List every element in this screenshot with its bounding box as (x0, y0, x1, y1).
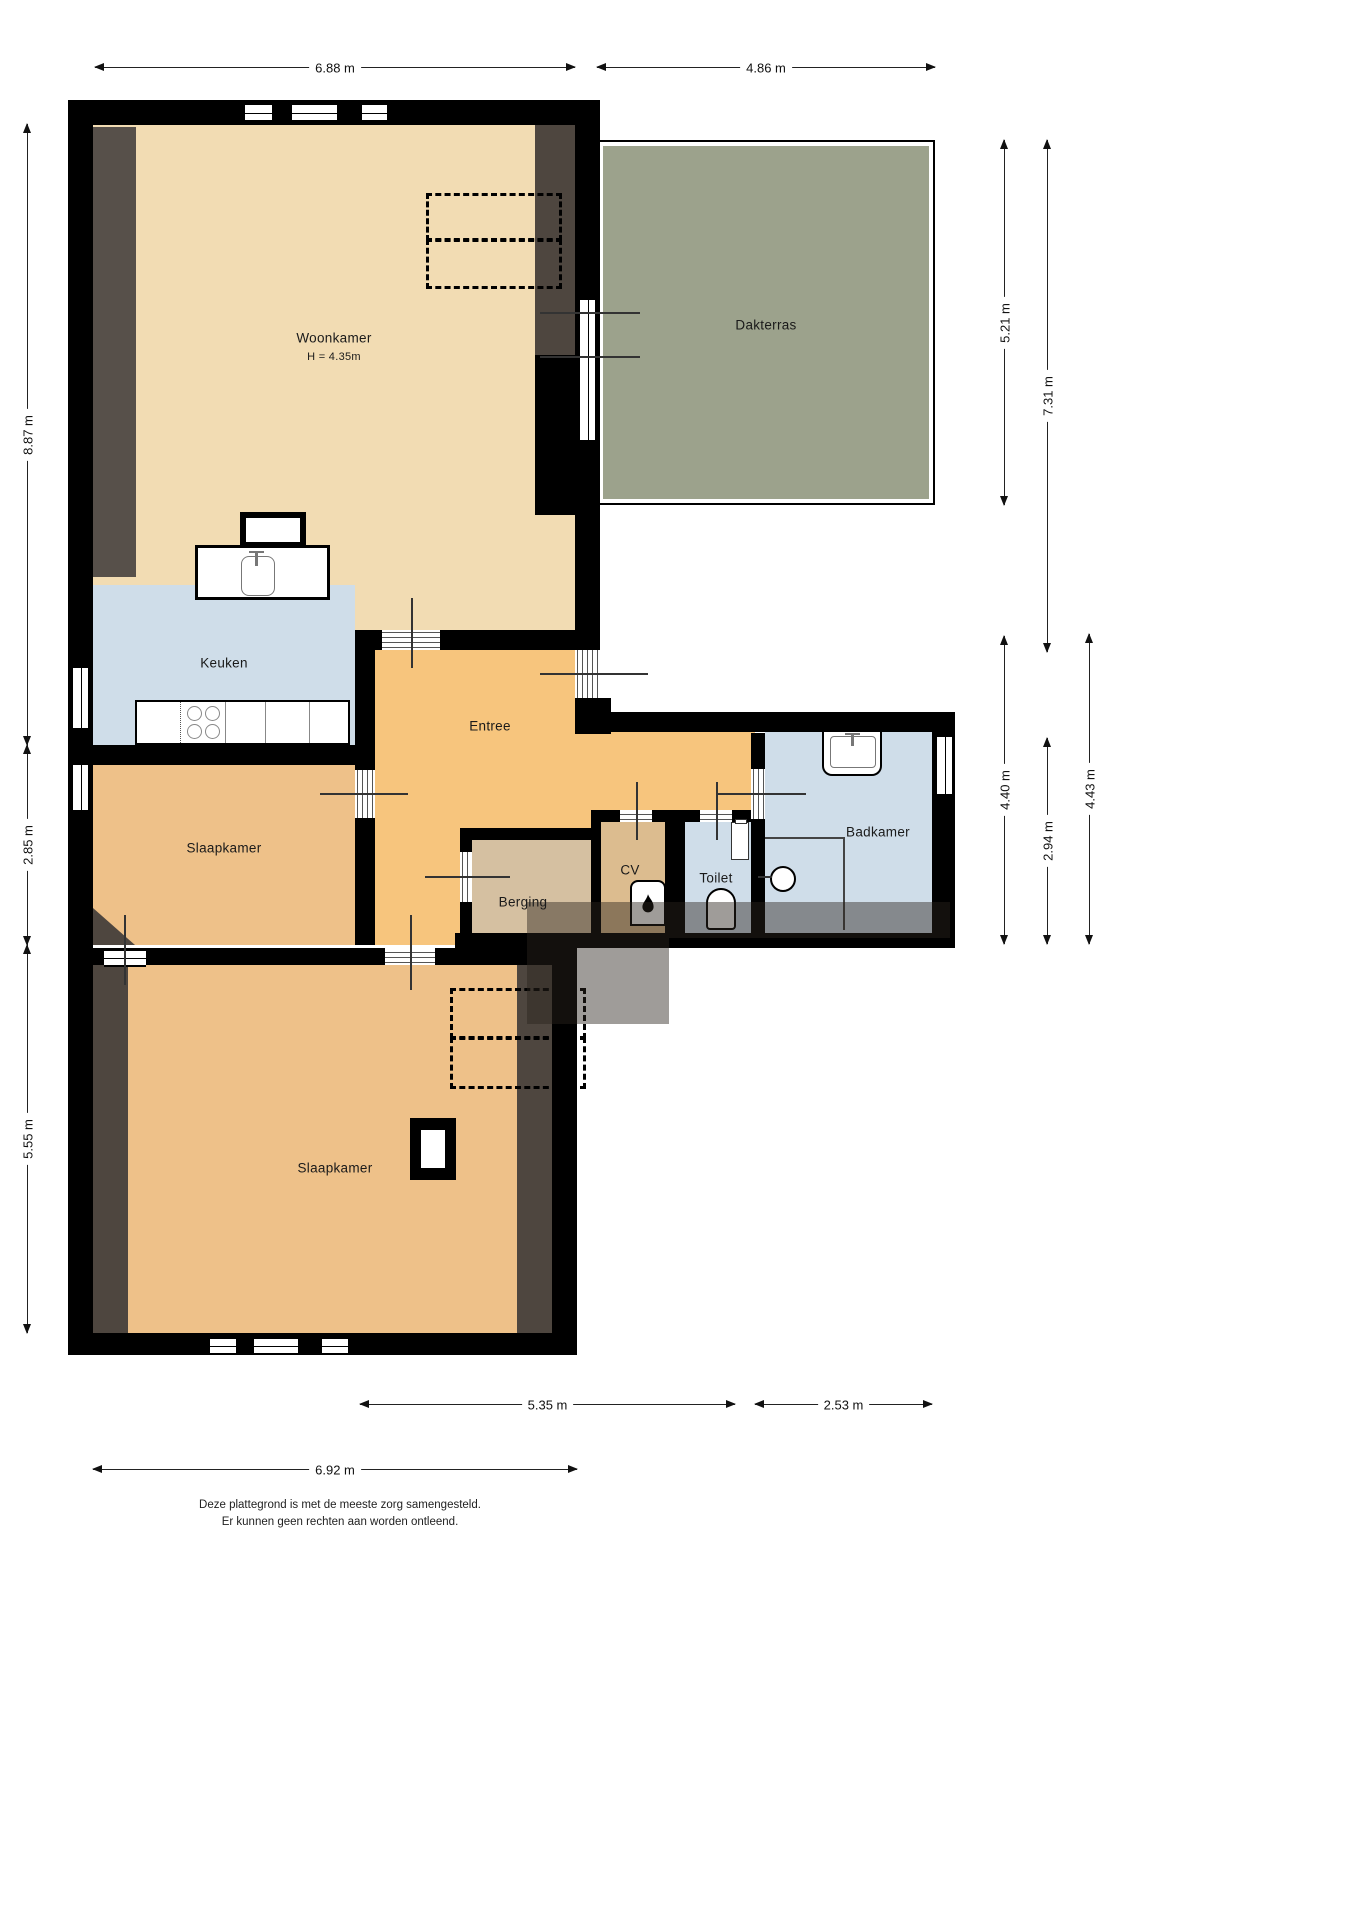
window-bottom-3 (322, 1337, 348, 1355)
kitchen-island (195, 545, 330, 600)
dim-bottom-mid: 5.35 m (360, 1398, 735, 1412)
dim-top-left: 6.88 m (95, 61, 575, 75)
dim-label: 2.94 m (1040, 815, 1057, 867)
label-badkamer: Badkamer (846, 825, 910, 840)
bathroom-faucet-handle-icon (845, 733, 860, 735)
disclaimer: Deze plattegrond is met de meeste zorg s… (199, 1497, 481, 1531)
dim-right-terrace: 5.21 m (998, 140, 1012, 505)
door-tick-berging (425, 876, 510, 878)
window-bottom-1 (210, 1337, 236, 1355)
window-woonkamer-dakterras (578, 300, 597, 440)
door-tick-entree-outside (540, 673, 648, 675)
window-top-2 (292, 103, 337, 122)
disclaimer-line2: Er kunnen geen rechten aan worden ontlee… (199, 1514, 481, 1531)
dashed-void-slaapkamer-2 (450, 1037, 586, 1089)
dashed-void-woonkamer-2 (426, 239, 562, 289)
dim-label: 2.53 m (818, 1397, 870, 1414)
sloped-zone-woonkamer-left (93, 127, 136, 577)
chimney (410, 1118, 456, 1180)
faucet-icon (255, 552, 258, 566)
dim-right-mid-inner: 4.40 m (998, 636, 1012, 944)
island-cabinet (240, 512, 306, 548)
wall-badkamer-top (593, 712, 932, 732)
shower-head-icon (770, 866, 796, 892)
label-toilet: Toilet (699, 871, 732, 886)
dim-label: 4.43 m (1082, 763, 1099, 815)
door-tick-slaapkamer-bottom (410, 915, 412, 990)
wall-berging-top (460, 828, 592, 840)
dim-left-middle: 2.85 m (21, 745, 35, 945)
window-badkamer-right (935, 737, 954, 794)
dim-label: 4.40 m (997, 764, 1014, 816)
dim-label: 8.87 m (20, 409, 37, 461)
door-tick-cv (636, 782, 638, 840)
label-entree: Entree (469, 719, 511, 734)
dim-left-top: 8.87 m (21, 124, 35, 745)
window-tick-1 (540, 312, 640, 314)
dim-label: 5.21 m (997, 297, 1014, 349)
window-bottom-2 (254, 1337, 298, 1355)
roof-overlay-vertical (527, 938, 669, 1024)
dim-bottom-right: 2.53 m (755, 1398, 932, 1412)
door-tick-slaapkamer-mid (320, 793, 408, 795)
window-top-1 (245, 103, 272, 122)
dashed-void-woonkamer-1 (426, 193, 562, 241)
dim-label: 5.55 m (20, 1113, 37, 1165)
disclaimer-line1: Deze plattegrond is met de meeste zorg s… (199, 1497, 481, 1514)
dim-label: 5.35 m (522, 1397, 574, 1414)
label-woonkamer: Woonkamer (296, 331, 371, 346)
sloped-zone-slaapkamer-left (93, 965, 128, 1333)
wall-keuken-entree (355, 630, 375, 765)
floor-plan: Woonkamer H = 4.35m Dakterras Keuken Ent… (0, 0, 1358, 1920)
counter-divider (265, 702, 266, 743)
bathroom-sink (822, 732, 882, 776)
shower-arm-icon (758, 876, 772, 878)
label-cv: CV (620, 863, 639, 878)
dim-right-terrace-total: 7.31 m (1041, 140, 1055, 652)
label-slaapkamer-mid: Slaapkamer (186, 841, 261, 856)
label-berging: Berging (499, 895, 548, 910)
dim-bottom-left: 6.92 m (93, 1463, 577, 1477)
dim-label: 7.31 m (1040, 370, 1057, 422)
wall-keuken-bottom (68, 745, 375, 765)
bathroom-faucet-icon (851, 734, 854, 746)
kitchen-counter (135, 700, 350, 745)
dim-top-right: 4.86 m (597, 61, 935, 75)
dim-right-mid-outer: 4.43 m (1083, 634, 1097, 944)
label-keuken: Keuken (200, 656, 248, 671)
radiator-icon (731, 822, 749, 860)
window-top-3 (362, 103, 387, 122)
faucet-handle-icon (249, 551, 264, 553)
door-tick-woonkamer-entree (411, 598, 413, 668)
label-slaapkamer-bottom: Slaapkamer (297, 1161, 372, 1176)
dim-label: 6.88 m (309, 60, 361, 77)
dim-left-bottom: 5.55 m (21, 945, 35, 1333)
label-woonkamer-height: H = 4.35m (307, 351, 361, 363)
label-dakterras: Dakterras (735, 318, 796, 333)
window-tick-2 (540, 356, 640, 358)
cooktop-icon (180, 702, 226, 743)
dim-label: 2.85 m (20, 819, 37, 871)
sink-icon (241, 556, 275, 596)
roof-overlay-horizontal (527, 902, 950, 938)
window-left-slaapkamer-mid (71, 765, 90, 810)
counter-divider-2 (309, 702, 310, 743)
dim-label: 4.86 m (740, 60, 792, 77)
door-tick-badkamer (718, 793, 806, 795)
door-tick-toilet (716, 782, 718, 840)
dim-label: 6.92 m (309, 1462, 361, 1479)
window-tick-3 (124, 915, 126, 985)
dim-right-mid-bath: 2.94 m (1041, 738, 1055, 944)
window-left-keuken (71, 668, 90, 728)
